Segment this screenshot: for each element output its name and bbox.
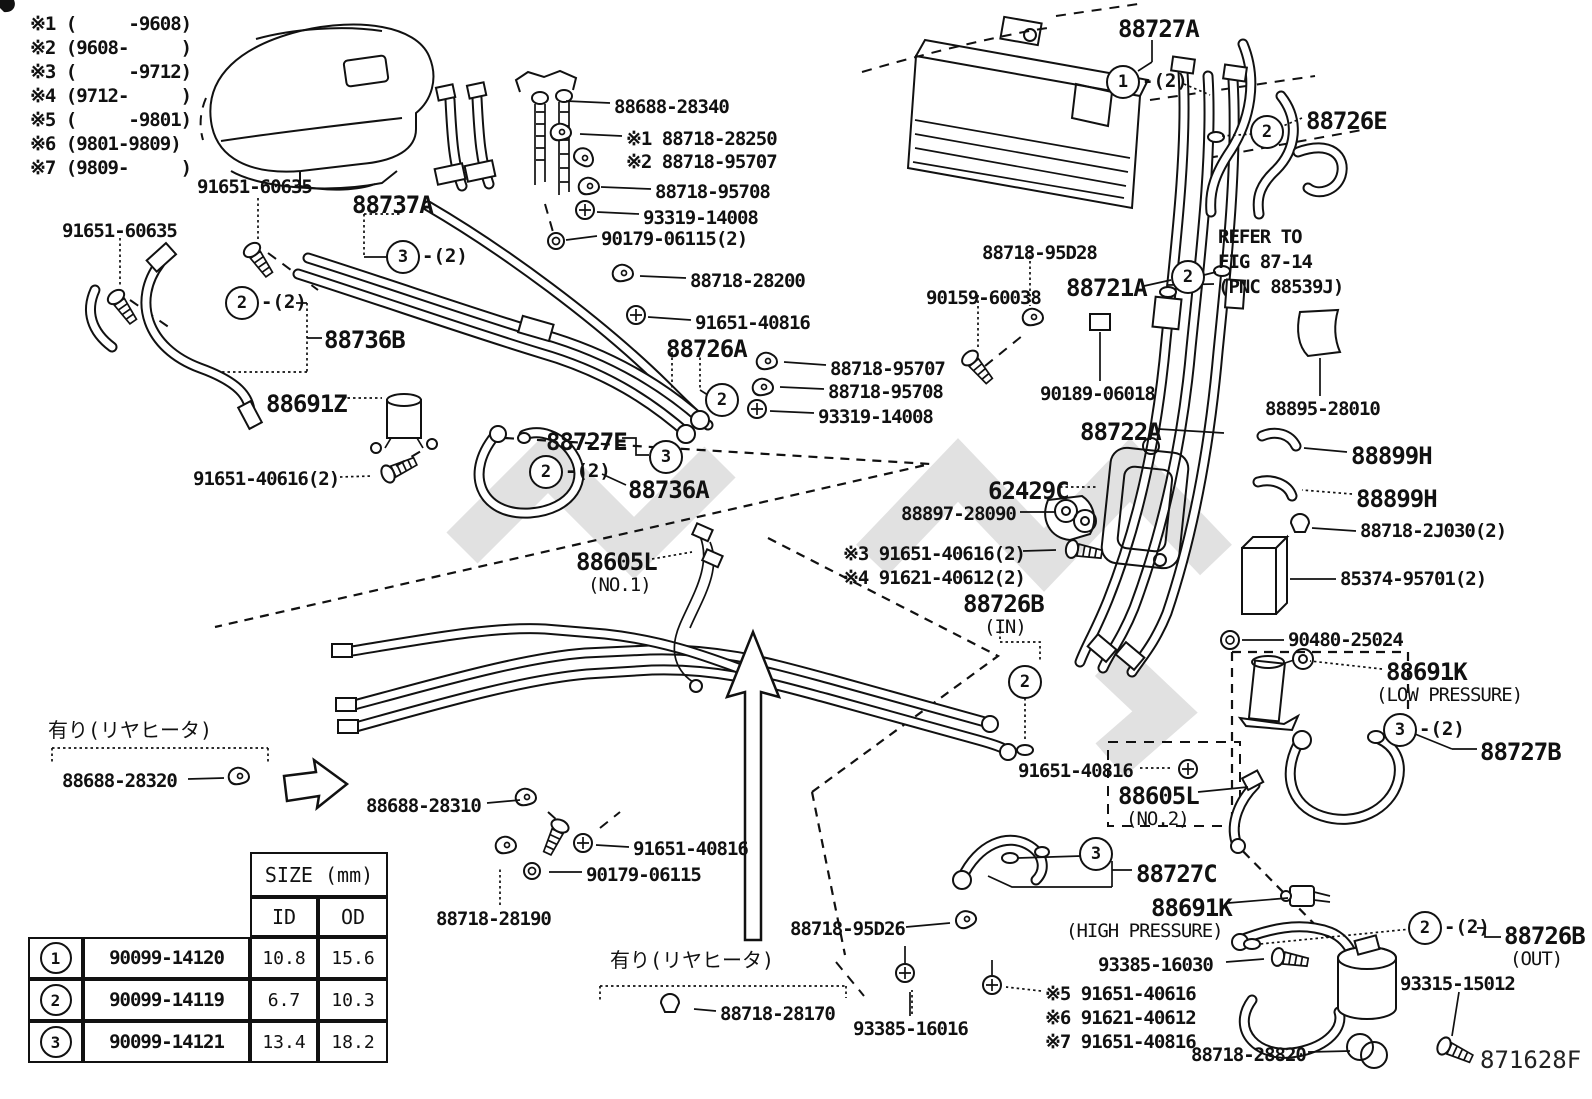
part-label-88736B[interactable]: 88736B [324,326,405,354]
part-label-88727E[interactable]: 88727E [546,428,627,456]
part-label-88899H-b[interactable]: 88899H [1356,485,1437,513]
size-table: SIZE (mm) ID OD 1 90099-14120 10.8 15.6 … [28,852,388,1064]
part-label-88718-28200[interactable]: 88718-28200 [690,270,805,292]
part-label-62429C[interactable]: 62429C [988,477,1069,505]
callout-circle-2-5[interactable]: 2 [705,383,739,417]
part-label-91651-40816-c[interactable]: 91651-40816 [633,838,748,860]
part-label-88718-28170[interactable]: 88718-28170 [720,1003,835,1025]
table-row-2-callout: 2 [28,979,83,1021]
part-label-91651-60635-b[interactable]: 91651-60635 [62,220,177,242]
part-label-91651-60635-a[interactable]: 91651-60635 [197,176,312,198]
part-label-88688-28340[interactable]: 88688-28340 [614,96,729,118]
callout-circle-3-2[interactable]: 3 [386,240,420,274]
note-line-2: ※2 (9608- ) [30,36,191,60]
part-label-88718-28820[interactable]: 88718-28820 [1191,1044,1306,1066]
condenser-unit [908,17,1148,208]
part-label-88691K-low-sub: (LOW PRESSURE) [1376,684,1522,706]
callout-qty-2: -(2) [422,245,468,267]
part-label-91651-40816-b[interactable]: 91651-40816 [1018,760,1133,782]
evaporator-unit [201,25,434,190]
part-label-n5-91651-40616[interactable]: ※5 91651-40616 [1045,983,1196,1005]
part-label-88691K-high-sub: (HIGH PRESSURE) [1066,920,1223,942]
part-label-88721A[interactable]: 88721A [1066,274,1147,302]
part-label-jp-rear-heater-1: 有り(リヤヒータ) [48,714,212,743]
size-table-col-id: ID [250,897,318,937]
part-label-91651-40816-a[interactable]: 91651-40816 [695,312,810,334]
note-line-3: ※3 ( -9712) [30,60,191,84]
part-label-fig-code: 871628F [1480,1046,1581,1074]
part-label-90159-60038[interactable]: 90159-60038 [926,287,1041,309]
callout-qty-0: -(2) [1142,70,1188,92]
part-label-88726B-in-sub: (IN) [984,616,1026,638]
part-label-90480-25024[interactable]: 90480-25024 [1288,629,1403,651]
part-label-88688-28320[interactable]: 88688-28320 [62,770,177,792]
callout-circle-2-4[interactable]: 2 [1171,260,1205,294]
part-label-n4-91621-40612-2[interactable]: ※4 91621-40612(2) [843,567,1025,589]
part-label-88727A[interactable]: 88727A [1118,15,1199,43]
parts-diagram-page: ※1 ( -9608) ※2 (9608- ) ※3 ( -9712) ※4 (… [0,0,1592,1099]
part-label-88737A[interactable]: 88737A [352,191,433,219]
table-row-2-od: 10.3 [318,979,388,1021]
arrow-right-icon [284,760,347,808]
callout-circle-3-9[interactable]: 3 [1383,713,1417,747]
callout-qty-11: -(2) [1444,916,1490,938]
callout-circle-2-11[interactable]: 2 [1408,911,1442,945]
part-label-90189-06018[interactable]: 90189-06018 [1040,383,1155,405]
table-row-1-od: 15.6 [318,937,388,979]
callout-circle-3-10[interactable]: 3 [1079,837,1113,871]
note-line-4: ※4 (9712- ) [30,84,191,108]
part-label-88726B-in[interactable]: 88726B [963,590,1044,618]
part-label-88718-95707-b[interactable]: 88718-95707 [830,358,945,380]
part-label-91651-40616-2[interactable]: 91651-40616(2) [193,468,339,490]
table-row-1-part[interactable]: 90099-14120 [83,937,250,979]
callout-circle-2-1[interactable]: 2 [1250,115,1284,149]
part-label-88899H-a[interactable]: 88899H [1351,442,1432,470]
part-label-88691K-high[interactable]: 88691K [1151,894,1232,922]
size-table-col-od: OD [318,897,388,937]
table-row-3-id: 13.4 [250,1021,318,1063]
part-label-88688-28310[interactable]: 88688-28310 [366,795,481,817]
table-row-3-part[interactable]: 90099-14121 [83,1021,250,1063]
table-row-3-od: 18.2 [318,1021,388,1063]
part-label-88736A[interactable]: 88736A [628,476,709,504]
part-label-88718-95707-a[interactable]: ※2 88718-95707 [626,151,777,173]
part-label-88718-28250[interactable]: ※1 88718-28250 [626,128,777,150]
callout-circle-1-0[interactable]: 1 [1106,65,1140,99]
part-label-n6-91621-40612[interactable]: ※6 91621-40612 [1045,1007,1196,1029]
callout-circle-2-7[interactable]: 2 [529,455,563,489]
part-label-88897-28090[interactable]: 88897-28090 [901,503,1016,525]
part-label-88726A[interactable]: 88726A [666,335,747,363]
callout-circle-2-3[interactable]: 2 [225,286,259,320]
callout-qty-3: -(2) [261,291,307,313]
part-label-88726B-out[interactable]: 88726B [1504,922,1585,950]
part-label-88718-95D28[interactable]: 88718-95D28 [982,242,1097,264]
part-label-88605L-no2[interactable]: 88605L [1118,782,1199,810]
note-line-7: ※7 (9809- ) [30,156,191,180]
part-label-n7-91651-40816[interactable]: ※7 91651-40816 [1045,1031,1196,1053]
table-row-3-callout: 3 [28,1021,83,1063]
part-label-93385-16016[interactable]: 93385-16016 [853,1018,968,1040]
size-table-title: SIZE (mm) [250,852,388,897]
part-label-88718-95708-a[interactable]: 88718-95708 [655,181,770,203]
part-label-jp-rear-heater-2: 有り(リヤヒータ) [610,944,774,973]
part-label-93385-16030[interactable]: 93385-16030 [1098,954,1213,976]
part-label-88718-95D26[interactable]: 88718-95D26 [790,918,905,940]
callout-circle-2-8[interactable]: 2 [1008,665,1042,699]
part-label-88726B-out-sub: (OUT) [1510,948,1562,970]
part-label-refer-line1: REFER TO [1218,226,1302,248]
part-label-88718-28190[interactable]: 88718-28190 [436,908,551,930]
note-line-1: ※1 ( -9608) [30,12,191,36]
part-label-88722A[interactable]: 88722A [1080,418,1161,446]
part-label-88718-95708-b[interactable]: 88718-95708 [828,381,943,403]
callout-qty-7: -(2) [565,460,611,482]
part-label-refer-line3: (PNC 88539J) [1218,276,1343,298]
table-row-1-id: 10.8 [250,937,318,979]
part-label-88726E[interactable]: 88726E [1306,107,1387,135]
part-label-88718-2J030-2[interactable]: 88718-2J030(2) [1360,520,1506,542]
part-label-88691Z[interactable]: 88691Z [266,390,347,418]
applicability-notes: ※1 ( -9608) ※2 (9608- ) ※3 ( -9712) ※4 (… [30,12,191,180]
note-line-5: ※5 ( -9801) [30,108,191,132]
part-label-refer-line2: FIG 87-14 [1218,251,1312,273]
arrow-up-icon [727,632,779,940]
table-row-2-id: 6.7 [250,979,318,1021]
note-line-6: ※6 (9801-9809) [30,132,191,156]
part-label-n3-91651-40616-2[interactable]: ※3 91651-40616(2) [843,543,1025,565]
part-label-88605L-no1-sub: (NO.1) [588,574,651,596]
part-label-88895-28010[interactable]: 88895-28010 [1265,398,1380,420]
part-label-85374-95701-2[interactable]: 85374-95701(2) [1340,568,1486,590]
part-label-93319-14008-b[interactable]: 93319-14008 [818,406,933,428]
table-row-1-callout: 1 [28,937,83,979]
part-label-90179-06115-2[interactable]: 90179-06115(2) [601,228,747,250]
part-label-88605L-no1[interactable]: 88605L [576,548,657,576]
part-label-88605L-no2-sub: (NO.2) [1126,808,1189,830]
part-label-90179-06115[interactable]: 90179-06115 [586,864,701,886]
callout-qty-9: -(2) [1419,718,1465,740]
table-row-2-part[interactable]: 90099-14119 [83,979,250,1021]
part-label-88727B[interactable]: 88727B [1480,738,1561,766]
part-label-93319-14008-a[interactable]: 93319-14008 [643,207,758,229]
part-label-88691K-low[interactable]: 88691K [1386,658,1467,686]
callout-circle-3-6[interactable]: 3 [649,440,683,474]
part-label-93315-15012[interactable]: 93315-15012 [1400,973,1515,995]
part-label-88727C[interactable]: 88727C [1136,860,1217,888]
